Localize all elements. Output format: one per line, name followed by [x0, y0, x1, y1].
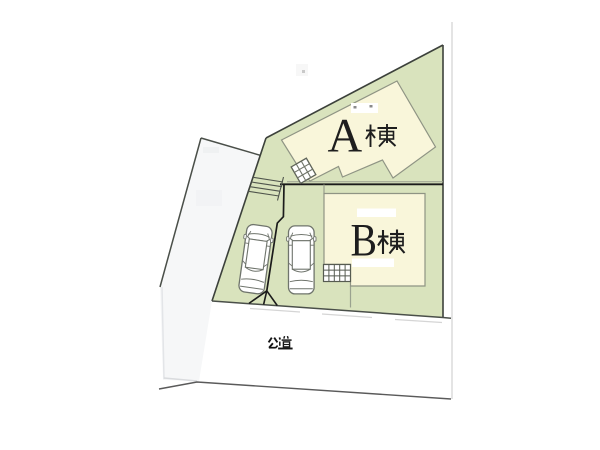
svg-text:A: A	[328, 110, 363, 163]
svg-text:B: B	[351, 216, 378, 267]
